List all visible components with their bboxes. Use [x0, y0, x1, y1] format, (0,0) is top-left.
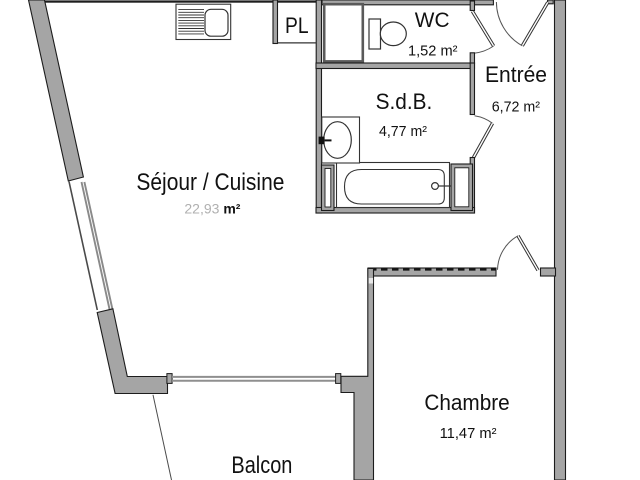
svg-text:22,93 m²: 22,93 m² [184, 200, 240, 216]
svg-text:Chambre: Chambre [424, 390, 509, 415]
svg-text:Séjour / Cuisine: Séjour / Cuisine [136, 169, 284, 196]
svg-text:S.d.B.: S.d.B. [376, 89, 433, 114]
svg-text:Entrée: Entrée [485, 62, 547, 87]
svg-text:11,47 m²: 11,47 m² [440, 426, 497, 442]
svg-text:6,72 m²: 6,72 m² [492, 100, 540, 116]
svg-text:4,77 m²: 4,77 m² [379, 124, 427, 140]
svg-text:Balcon: Balcon [231, 452, 292, 479]
svg-text:PL: PL [285, 13, 309, 38]
svg-text:1,52 m²: 1,52 m² [408, 43, 458, 59]
svg-text:WC: WC [415, 9, 450, 32]
